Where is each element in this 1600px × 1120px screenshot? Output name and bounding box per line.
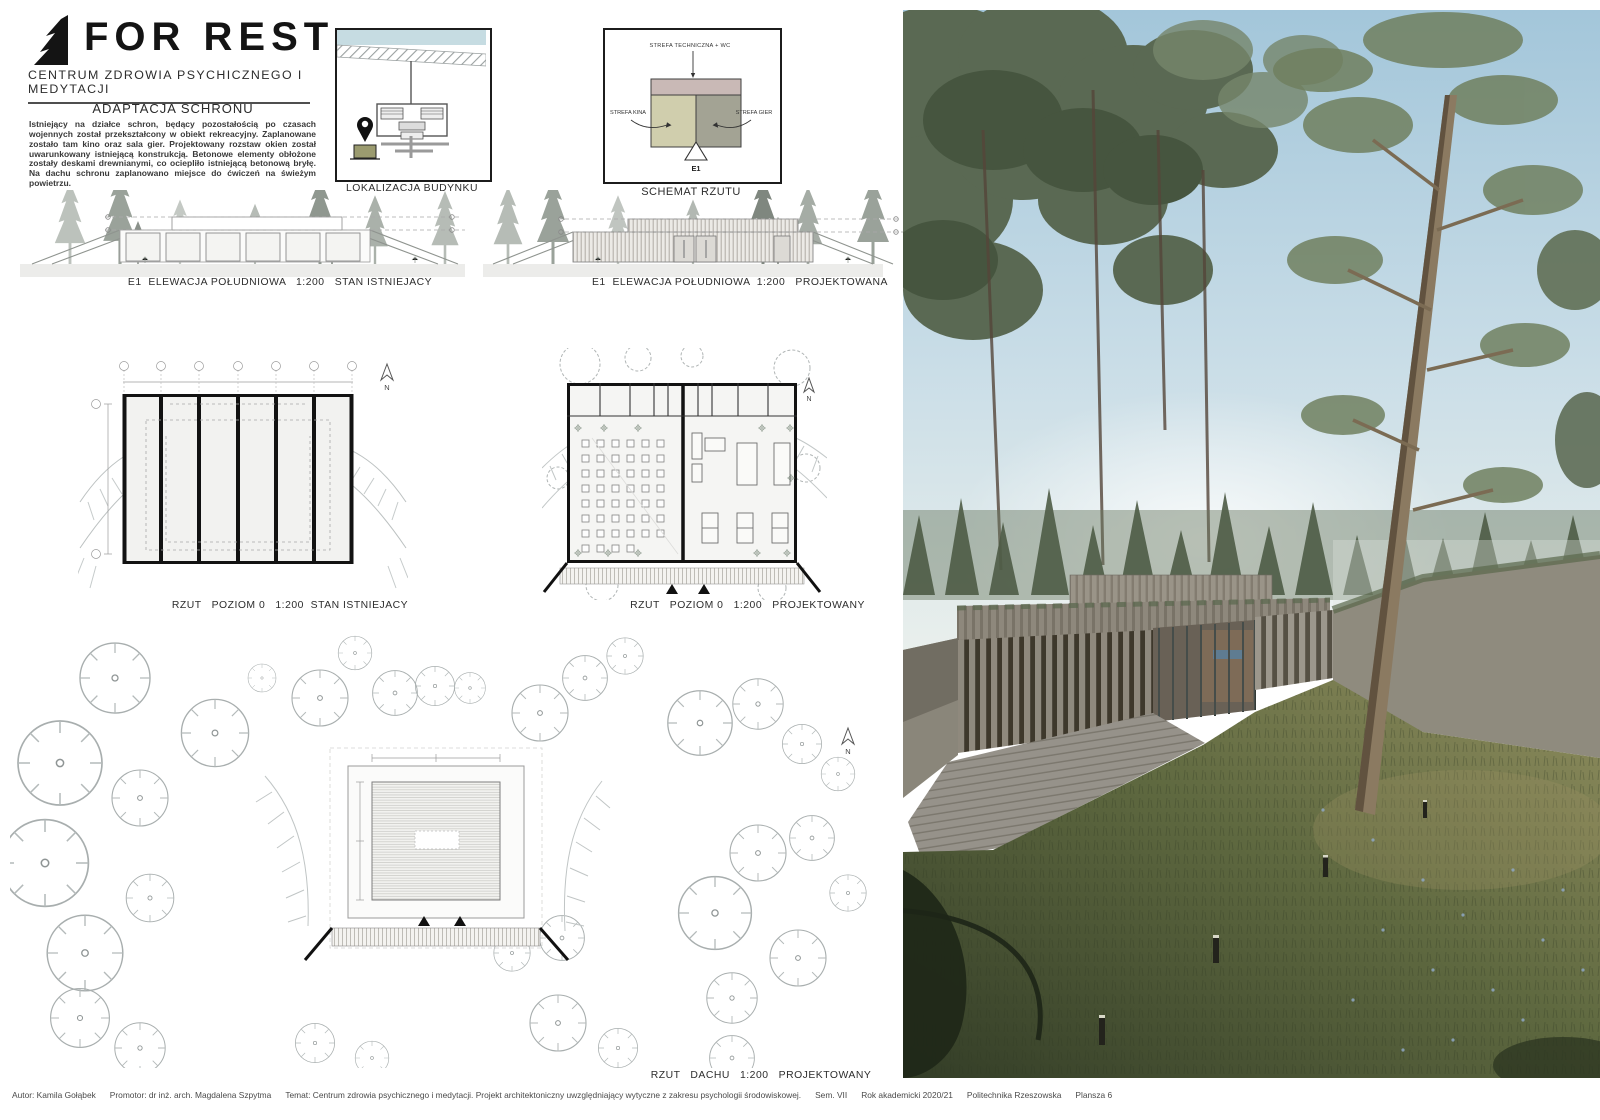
building-render-photo bbox=[903, 10, 1600, 1078]
presentation-board: FOR REST CENTRUM ZDROWIA PSYCHICZNEGO I … bbox=[0, 0, 1600, 1120]
plan-designed-caption: RZUT POZIOM 0 1:200 PROJEKTOWANY bbox=[615, 600, 880, 611]
entrance-arrows bbox=[666, 584, 710, 594]
north-arrow: N bbox=[804, 378, 814, 403]
entry-deck bbox=[332, 928, 540, 946]
plan-schema-drawing: STREFA TECHNICZNA + WC STREFA KINA STREF… bbox=[605, 30, 775, 177]
footer-semester: Sem. VII bbox=[815, 1090, 847, 1100]
footer-sheet: Plansza 6 bbox=[1075, 1090, 1112, 1100]
logo-title: FOR REST bbox=[84, 14, 334, 60]
location-diagram bbox=[335, 28, 492, 182]
footer-author: Autor: Kamila Gołąbek bbox=[12, 1090, 96, 1100]
parapet bbox=[172, 217, 342, 230]
footer-year: Rok akademicki 2020/21 bbox=[861, 1090, 953, 1100]
zone-technical-label: STREFA TECHNICZNA + WC bbox=[650, 43, 731, 49]
zone-games-label: STREFA GIER bbox=[736, 110, 773, 116]
intro-heading: ADAPTACJA SCHRONU bbox=[28, 101, 318, 116]
footer-promotor: Promotor: dr inż. arch. Magdalena Szpytm… bbox=[110, 1090, 272, 1100]
plan-existing-drawing: N bbox=[78, 352, 408, 597]
elevation-existing-caption: E1 ELEWACJA POŁUDNIOWA 1:200 STAN ISTNIE… bbox=[115, 277, 445, 288]
intro-paragraph: Istniejący na działce schron, będący poz… bbox=[29, 120, 316, 189]
north-arrow: N bbox=[842, 728, 854, 756]
deck-strip bbox=[560, 568, 804, 584]
zone-cinema-label: STREFA KINA bbox=[610, 110, 646, 116]
ground-strip bbox=[483, 264, 883, 277]
elevation-marker-label: E1 bbox=[691, 164, 700, 173]
elevation-designed-drawing bbox=[478, 190, 903, 280]
pine-tree-logo-icon bbox=[30, 14, 76, 66]
elevation-designed-caption: E1 ELEWACJA POŁUDNIOWA 1:200 PROJEKTOWAN… bbox=[590, 277, 890, 288]
svg-text:N: N bbox=[806, 396, 811, 403]
plan-existing-caption: RZUT POZIOM 0 1:200 STAN ISTNIEJACY bbox=[155, 600, 425, 611]
logo: FOR REST bbox=[30, 14, 334, 66]
svg-text:N: N bbox=[845, 747, 850, 756]
logo-subtitle: CENTRUM ZDROWIA PSYCHICZNEGO I MEDYTACJI bbox=[28, 68, 310, 104]
plan-designed-drawing: N bbox=[542, 348, 827, 600]
north-arrow: N bbox=[381, 364, 393, 392]
elevation-existing-drawing bbox=[20, 190, 465, 280]
ground-strip bbox=[20, 264, 465, 277]
footer-university: Politechnika Rzeszowska bbox=[967, 1090, 1062, 1100]
plan-schema-diagram: STREFA TECHNICZNA + WC STREFA KINA STREF… bbox=[603, 28, 782, 184]
roof-site-plan-drawing: N bbox=[10, 616, 880, 1068]
roof-plan-caption: RZUT DACHU 1:200 PROJEKTOWANY bbox=[645, 1070, 877, 1081]
building-footprint bbox=[377, 104, 447, 139]
footer-topic: Temat: Centrum zdrowia psychicznego i me… bbox=[285, 1090, 801, 1100]
svg-text:N: N bbox=[384, 383, 389, 392]
footer-credits: Autor: Kamila Gołąbek Promotor: dr inż. … bbox=[12, 1090, 892, 1100]
parapet bbox=[628, 219, 798, 232]
location-diagram-drawing bbox=[337, 30, 486, 176]
location-pin-icon bbox=[350, 117, 380, 159]
